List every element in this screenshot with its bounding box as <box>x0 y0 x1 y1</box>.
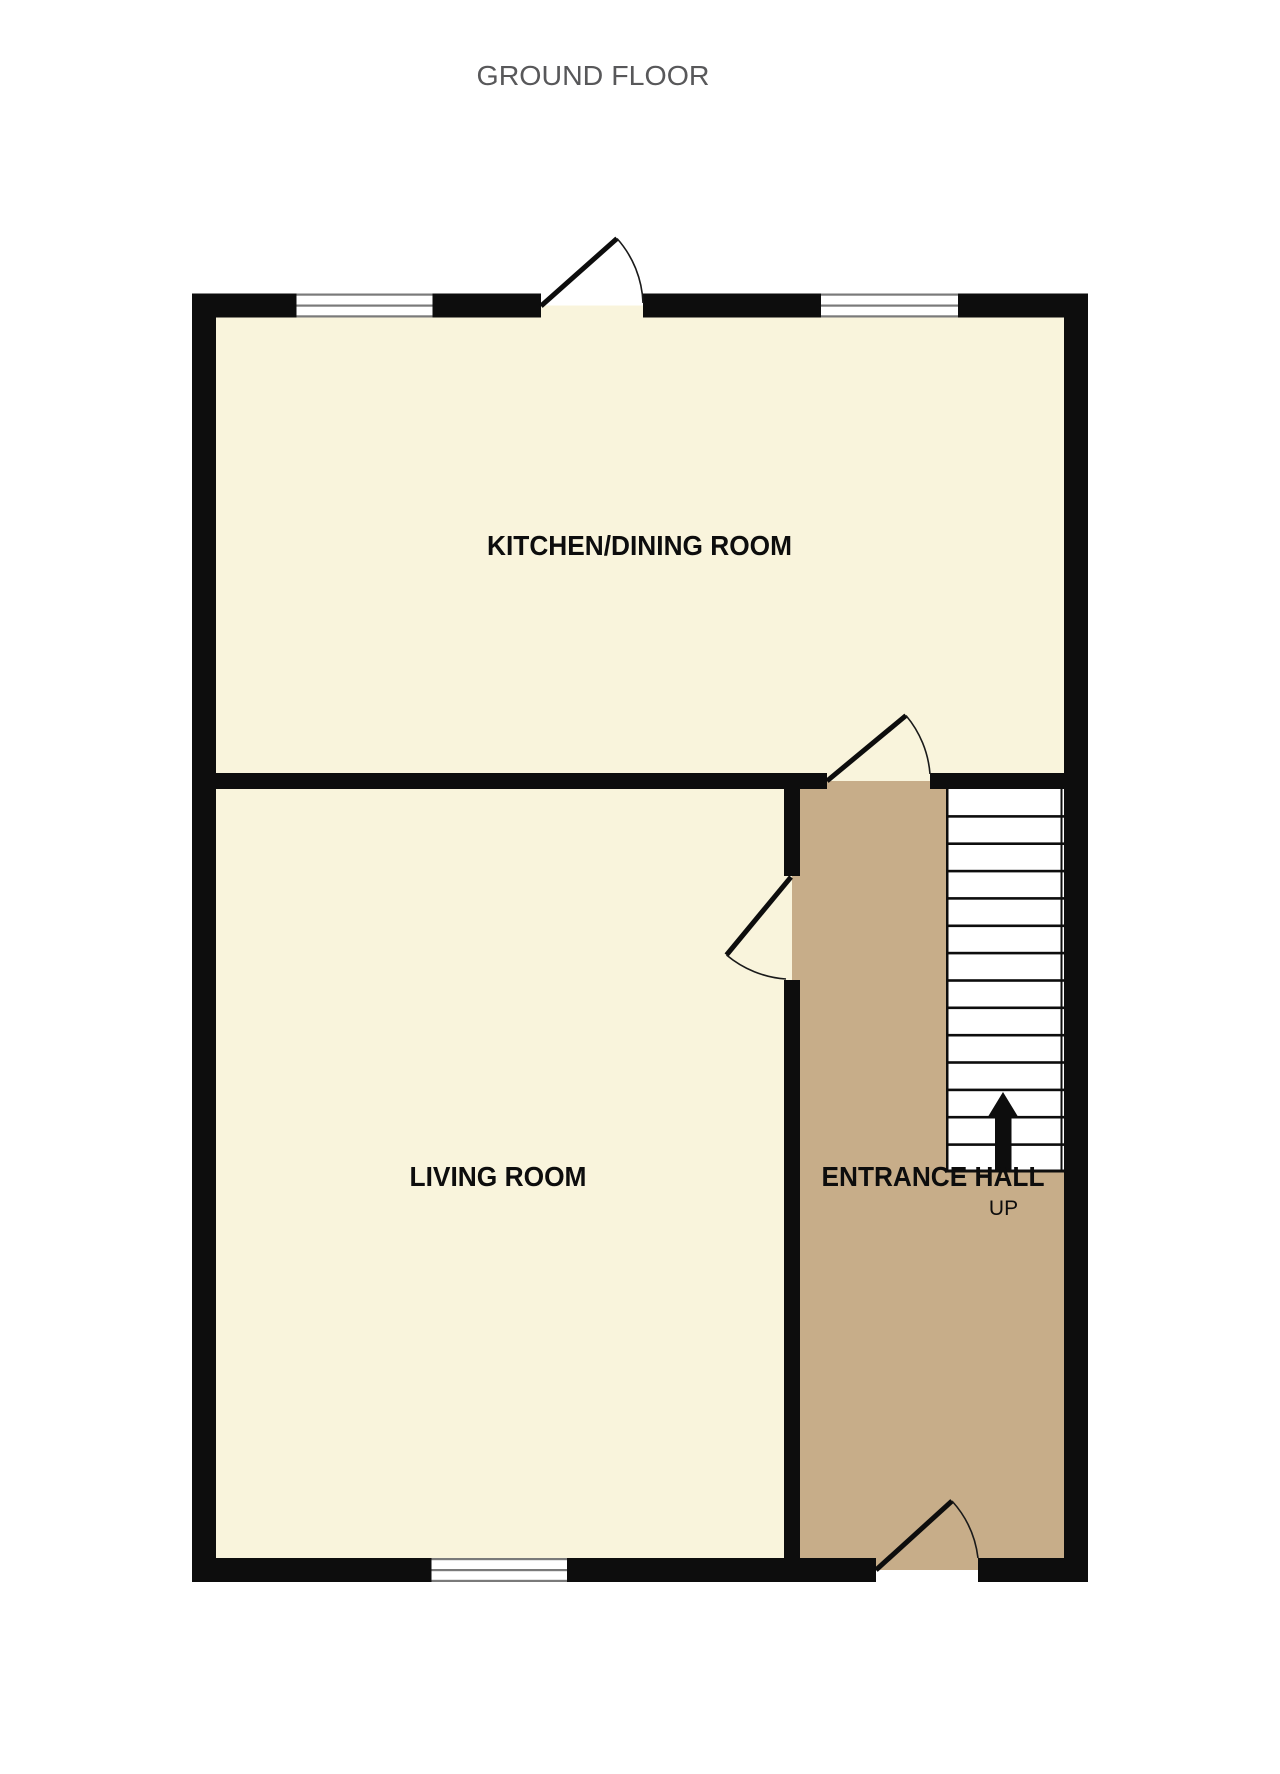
svg-text:ENTRANCE HALL: ENTRANCE HALL <box>822 1161 1045 1192</box>
svg-text:LIVING ROOM: LIVING ROOM <box>410 1161 587 1192</box>
svg-text:GROUND FLOOR: GROUND FLOOR <box>477 60 710 91</box>
svg-text:UP: UP <box>989 1197 1018 1220</box>
svg-text:KITCHEN/DINING ROOM: KITCHEN/DINING ROOM <box>487 530 792 561</box>
